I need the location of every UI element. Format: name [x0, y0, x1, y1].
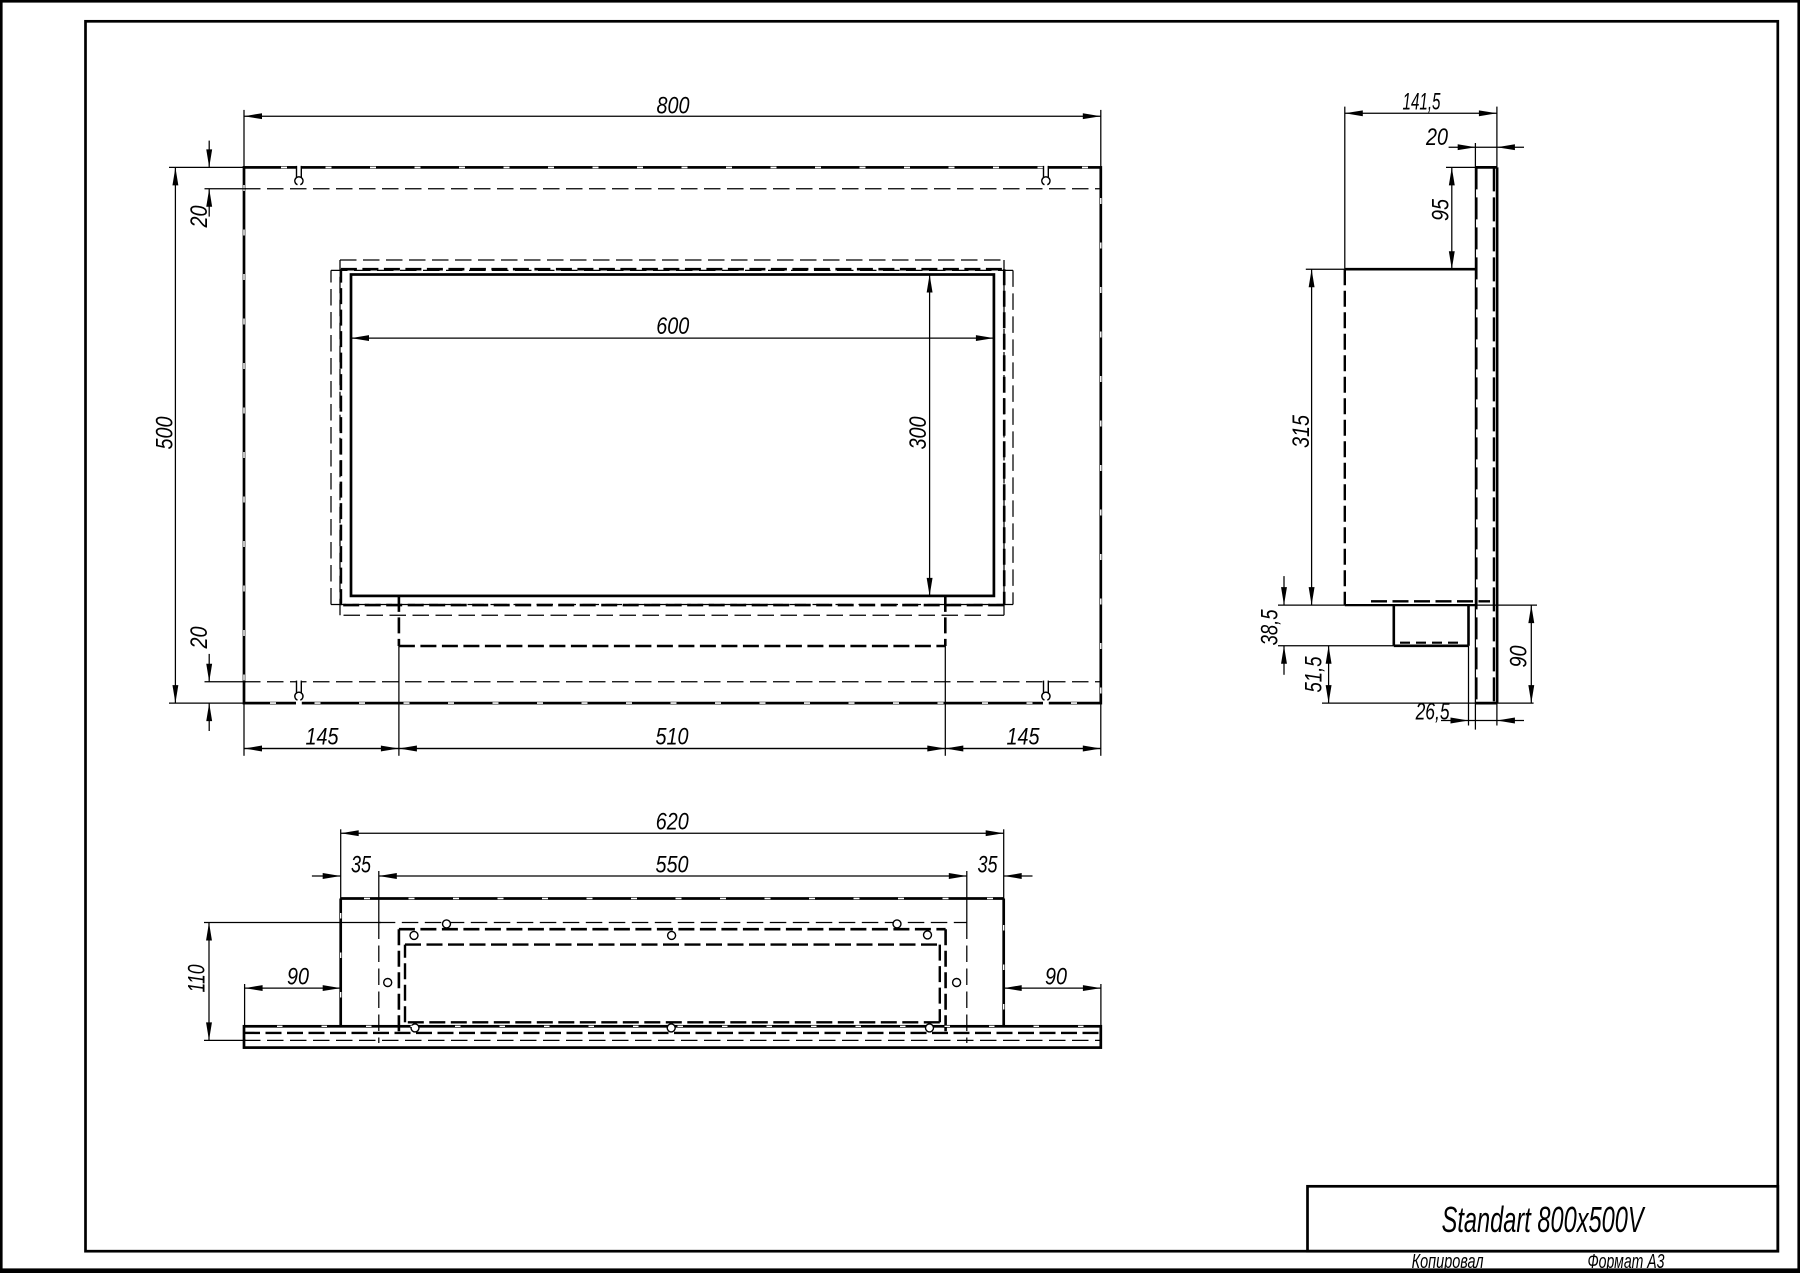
svg-text:Standart 800x500V: Standart 800x500V [1442, 1199, 1646, 1240]
svg-text:Формат А3: Формат А3 [1588, 1251, 1665, 1273]
svg-text:500: 500 [152, 416, 179, 450]
svg-text:95: 95 [1428, 198, 1455, 221]
svg-text:600: 600 [656, 313, 690, 340]
svg-text:550: 550 [656, 851, 690, 878]
svg-text:35: 35 [978, 851, 998, 878]
svg-text:145: 145 [306, 724, 340, 751]
svg-text:35: 35 [351, 851, 371, 878]
svg-text:Копировал: Копировал [1412, 1251, 1484, 1273]
svg-text:38,5: 38,5 [1256, 609, 1283, 645]
svg-text:20: 20 [186, 205, 213, 228]
svg-text:145: 145 [1007, 724, 1041, 751]
svg-text:315: 315 [1288, 414, 1315, 448]
svg-text:20: 20 [1425, 124, 1448, 151]
svg-text:110: 110 [184, 964, 211, 992]
svg-text:141,5: 141,5 [1403, 89, 1441, 116]
svg-text:26,5: 26,5 [1415, 699, 1450, 726]
svg-text:51,5: 51,5 [1301, 656, 1328, 692]
svg-text:90: 90 [287, 964, 310, 991]
svg-text:620: 620 [656, 808, 690, 835]
svg-text:90: 90 [1045, 964, 1068, 991]
svg-text:90: 90 [1506, 645, 1533, 668]
svg-text:800: 800 [657, 92, 691, 119]
svg-text:300: 300 [905, 416, 932, 450]
svg-text:20: 20 [186, 626, 213, 649]
svg-text:510: 510 [656, 724, 690, 751]
